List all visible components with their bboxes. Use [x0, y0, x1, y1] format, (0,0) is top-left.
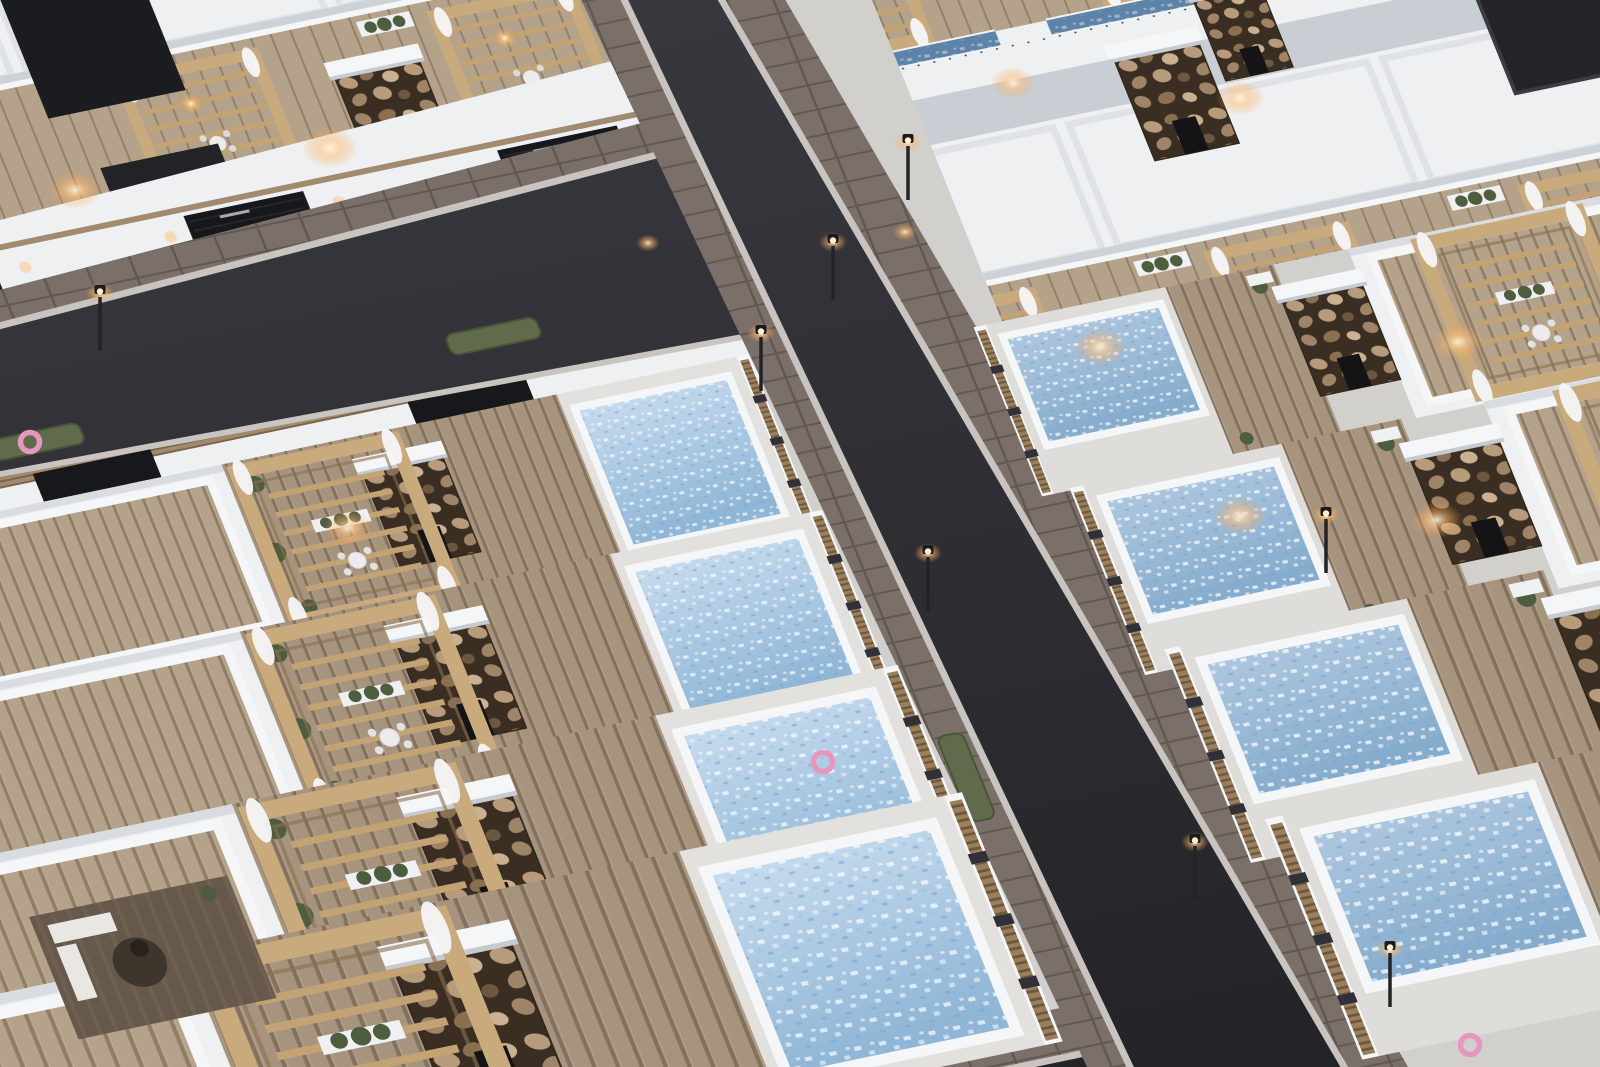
warm-light-glow	[1216, 81, 1264, 116]
warm-light-glow	[1432, 323, 1484, 360]
warm-light-glow	[302, 128, 358, 168]
warm-light-glow	[1214, 497, 1266, 534]
villa-development-render: Aerial 3D render of a modern villa devel…	[0, 0, 1600, 1067]
warm-light-glow	[324, 511, 372, 546]
aerial-render-stage: Aerial 3D render of a modern villa devel…	[0, 0, 1600, 1067]
warm-light-glow	[636, 234, 660, 251]
warm-light-glow	[991, 67, 1035, 99]
site-plan	[0, 0, 1600, 1067]
warm-light-glow	[1411, 501, 1463, 538]
warm-light-glow	[1074, 328, 1126, 365]
warm-light-glow	[49, 171, 101, 208]
warm-light-glow	[893, 223, 917, 240]
